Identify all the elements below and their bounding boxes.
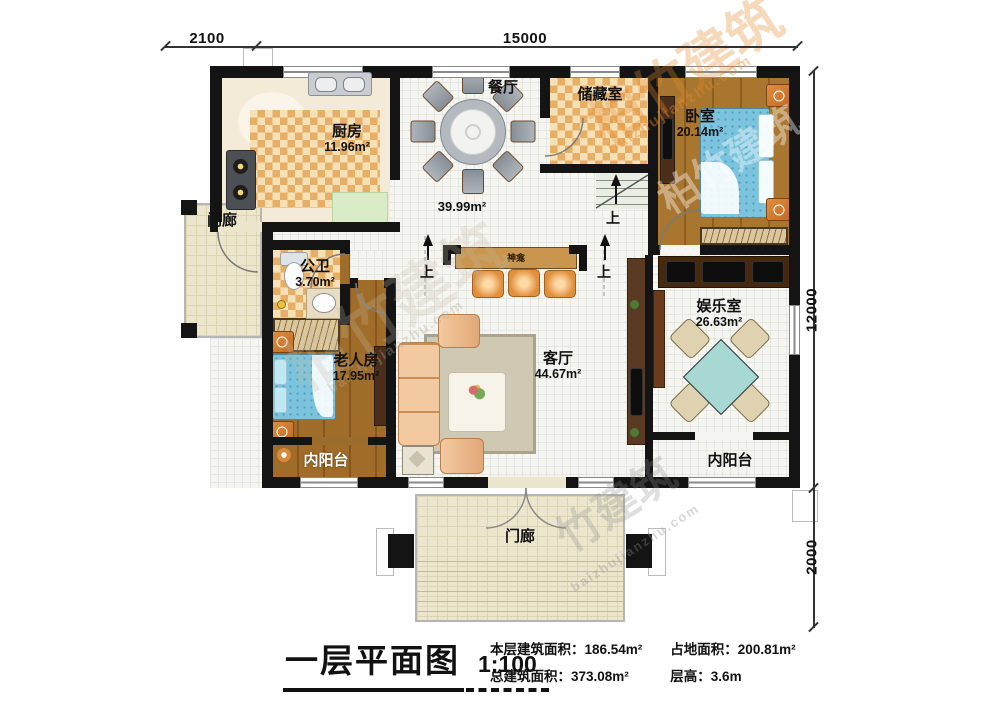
stat-total-area: 总建筑面积：373.08m² <box>490 665 642 685</box>
door-arc <box>526 488 566 528</box>
dimension-top-left: 2100 <box>189 30 224 47</box>
room-label-porch-left: 门廊 <box>207 212 237 229</box>
up-label-stairs: 上 <box>606 208 620 228</box>
room-label-balcony-left: 内阳台 <box>303 452 348 469</box>
stats-column: 本层建筑面积：186.54m² 总建筑面积：373.08m² <box>490 638 642 692</box>
plan-annotations-overlay <box>0 0 1000 706</box>
door-arc <box>356 283 386 313</box>
floor-plan-canvas: 2100 15000 12000 2000 <box>0 0 1000 706</box>
room-label-elder: 老人房 17.95m² <box>333 352 380 384</box>
stat-footprint: 占地面积：200.81m² <box>670 638 795 658</box>
hall-area-label: 39.99m² <box>438 200 486 215</box>
dimension-top-main: 15000 <box>503 30 547 47</box>
room-label-porch-bottom: 门廊 <box>505 528 535 545</box>
up-arrow <box>611 174 621 204</box>
room-label-bedroom: 卧室 20.14m² <box>677 108 724 140</box>
room-label-storage: 储藏室 <box>577 86 622 103</box>
door-arc <box>218 232 258 272</box>
room-label-dining: 餐厅 <box>488 79 518 96</box>
stair-rail <box>596 175 648 208</box>
plan-title: 一层平面图 <box>283 634 464 692</box>
room-label-entertainment: 娱乐室 26.63m² <box>696 298 743 330</box>
door-arc <box>486 488 526 528</box>
door-arc <box>545 118 583 156</box>
door-arc <box>660 210 700 250</box>
room-label-bathroom: 公卫 3.70m² <box>295 258 335 290</box>
stat-floor-area: 本层建筑面积：186.54m² <box>490 638 642 658</box>
up-label-step-right: 上 <box>597 262 611 282</box>
stat-height: 层高：3.6m <box>670 665 795 685</box>
up-arrow <box>600 234 610 260</box>
room-label-living: 客厅 44.67m² <box>535 350 582 382</box>
plan-stats: 本层建筑面积：186.54m² 总建筑面积：373.08m² 占地面积：200.… <box>490 638 796 692</box>
up-label-step-left: 上 <box>420 262 434 282</box>
dimension-line-top <box>165 46 798 48</box>
room-label-balcony-right: 内阳台 <box>707 452 752 469</box>
room-label-kitchen: 厨房 11.96m² <box>324 123 370 155</box>
dimension-right-main: 12000 <box>804 288 821 332</box>
dimension-right-bottom: 2000 <box>804 539 821 574</box>
stats-column: 占地面积：200.81m² 层高：3.6m <box>670 638 795 692</box>
